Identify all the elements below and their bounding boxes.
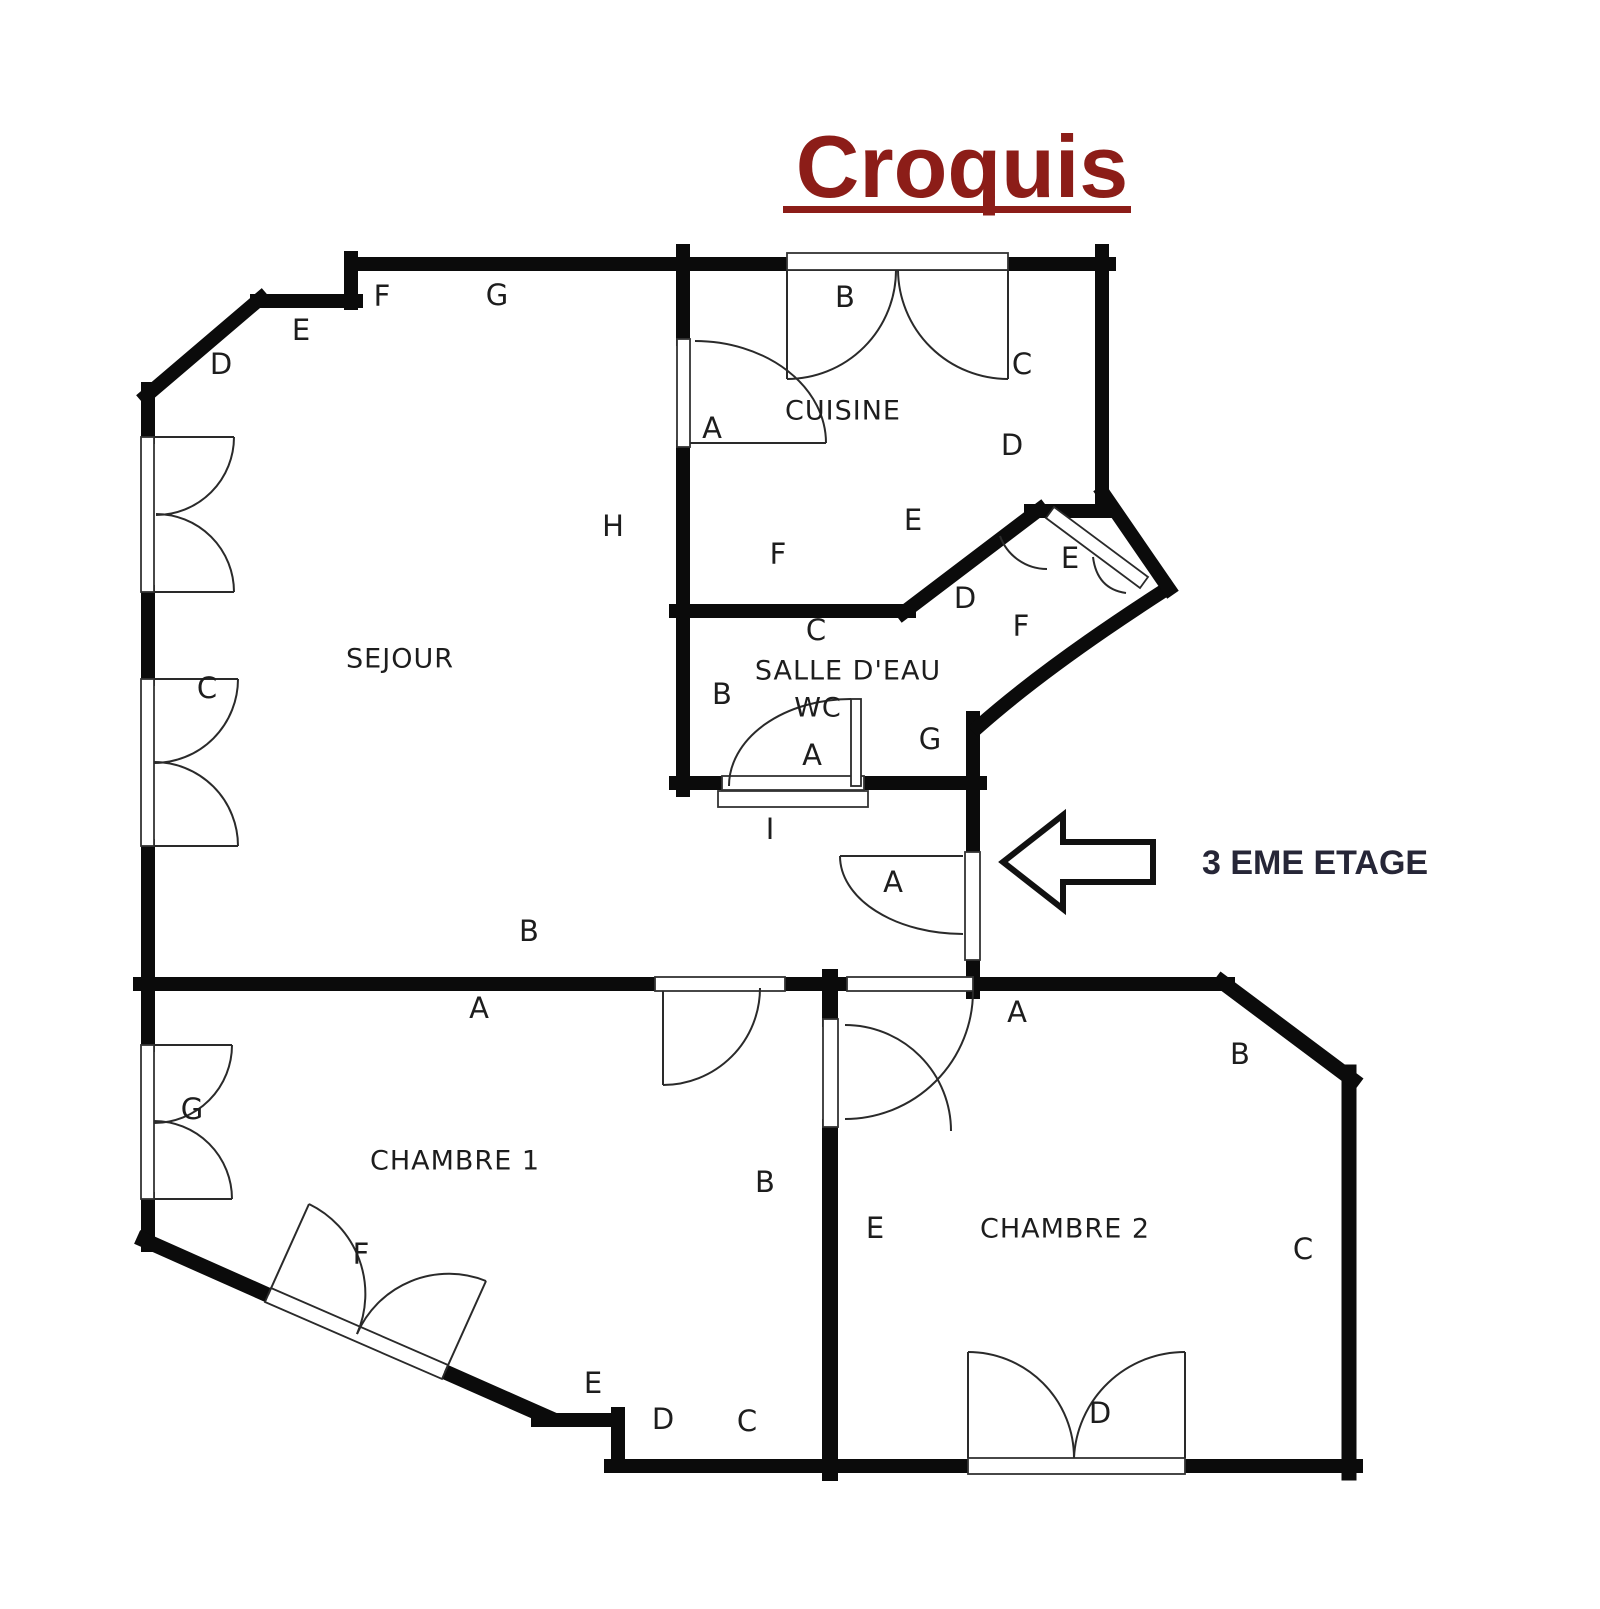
wall-letter-sde-b: B xyxy=(712,677,732,711)
wall-letter-ch2-c: C xyxy=(1293,1232,1313,1266)
wall-letter-ch2-e: E xyxy=(866,1211,884,1245)
wall-letter-cuisine-b: B xyxy=(835,280,855,314)
wall-letter-cuisine-a: A xyxy=(702,411,722,445)
wall-letter-ch1-e: E xyxy=(584,1366,602,1400)
sejour-window-1 xyxy=(141,437,154,592)
wall-letter-entry-f: F xyxy=(1013,609,1030,643)
room-label-chambre-2: CHAMBRE 2 xyxy=(980,1214,1150,1245)
floor-note: 3 EME ETAGE xyxy=(1202,844,1428,882)
salle-deau-door xyxy=(722,776,864,790)
wall-letter-ch1-f: F xyxy=(353,1237,370,1271)
wall-letter-entry-g: G xyxy=(919,722,941,756)
wall-letter-entry-d: D xyxy=(954,581,976,615)
wall-letter-sde-c: C xyxy=(806,613,826,647)
wall-letter-outer-d: D xyxy=(210,347,232,381)
chambre2-window xyxy=(968,1458,1185,1474)
wall-letter-entry-e: E xyxy=(1061,541,1079,575)
room-label-salle-deau: SALLE D'EAU xyxy=(755,656,941,687)
wall-letter-outer-f: F xyxy=(374,279,391,313)
wall-letter-ch1-c: C xyxy=(737,1404,757,1438)
salle-deau-threshold xyxy=(718,791,868,807)
wall-letter-cuisine-f: F xyxy=(770,537,787,571)
wall-letter-outer-g: G xyxy=(486,278,508,312)
wall-letter-sejour-b: B xyxy=(519,914,539,948)
room-label-chambre-1: CHAMBRE 1 xyxy=(370,1146,540,1177)
title-underline xyxy=(783,206,1131,213)
wall-letter-ch1-g: G xyxy=(181,1092,203,1126)
wall-letter-sde-a: A xyxy=(802,738,822,772)
floor-plan-drawing: Croquis xyxy=(0,0,1600,1609)
wall-letter-ch2-b: B xyxy=(1230,1037,1250,1071)
wall-letter-ch1-b: B xyxy=(755,1165,775,1199)
wall-letter-outer-e: E xyxy=(292,313,310,347)
walls-layer xyxy=(140,251,1356,1473)
wall-letter-cuisine-d: D xyxy=(1001,428,1023,462)
wall-letter-ch1-d: D xyxy=(652,1402,674,1436)
floor-plan-page: Croquis xyxy=(0,0,1600,1609)
cuisine-door xyxy=(677,339,690,447)
room-label-cuisine: CUISINE xyxy=(785,396,901,427)
wall-letter-ch2-a: A xyxy=(1007,995,1027,1029)
sejour-window-2 xyxy=(141,679,154,846)
wall-letter-cuisine-c: C xyxy=(1012,347,1032,381)
wall-letter-sejour-a: A xyxy=(469,991,489,1025)
wall-letter-sde-i: I xyxy=(766,812,775,846)
chambre1-door xyxy=(655,977,785,991)
wall-letter-cuisine-e: E xyxy=(904,503,922,537)
wall-letter-sejour-h: H xyxy=(602,509,624,543)
wall-letter-sejour-c: C xyxy=(197,671,217,705)
hall-door xyxy=(965,852,980,960)
left-arrow-icon xyxy=(1003,815,1153,909)
wall-letter-ch2-d: D xyxy=(1089,1396,1111,1430)
page-title: Croquis xyxy=(796,117,1128,216)
wall-letter-hall-a: A xyxy=(883,865,903,899)
chambre2-side-door xyxy=(823,1019,838,1127)
chambre2-top-door xyxy=(847,977,973,991)
cuisine-window xyxy=(787,253,1008,270)
room-label-sejour: SEJOUR xyxy=(346,644,454,675)
chambre1-window xyxy=(141,1045,154,1199)
room-label-wc: WC xyxy=(794,693,842,724)
